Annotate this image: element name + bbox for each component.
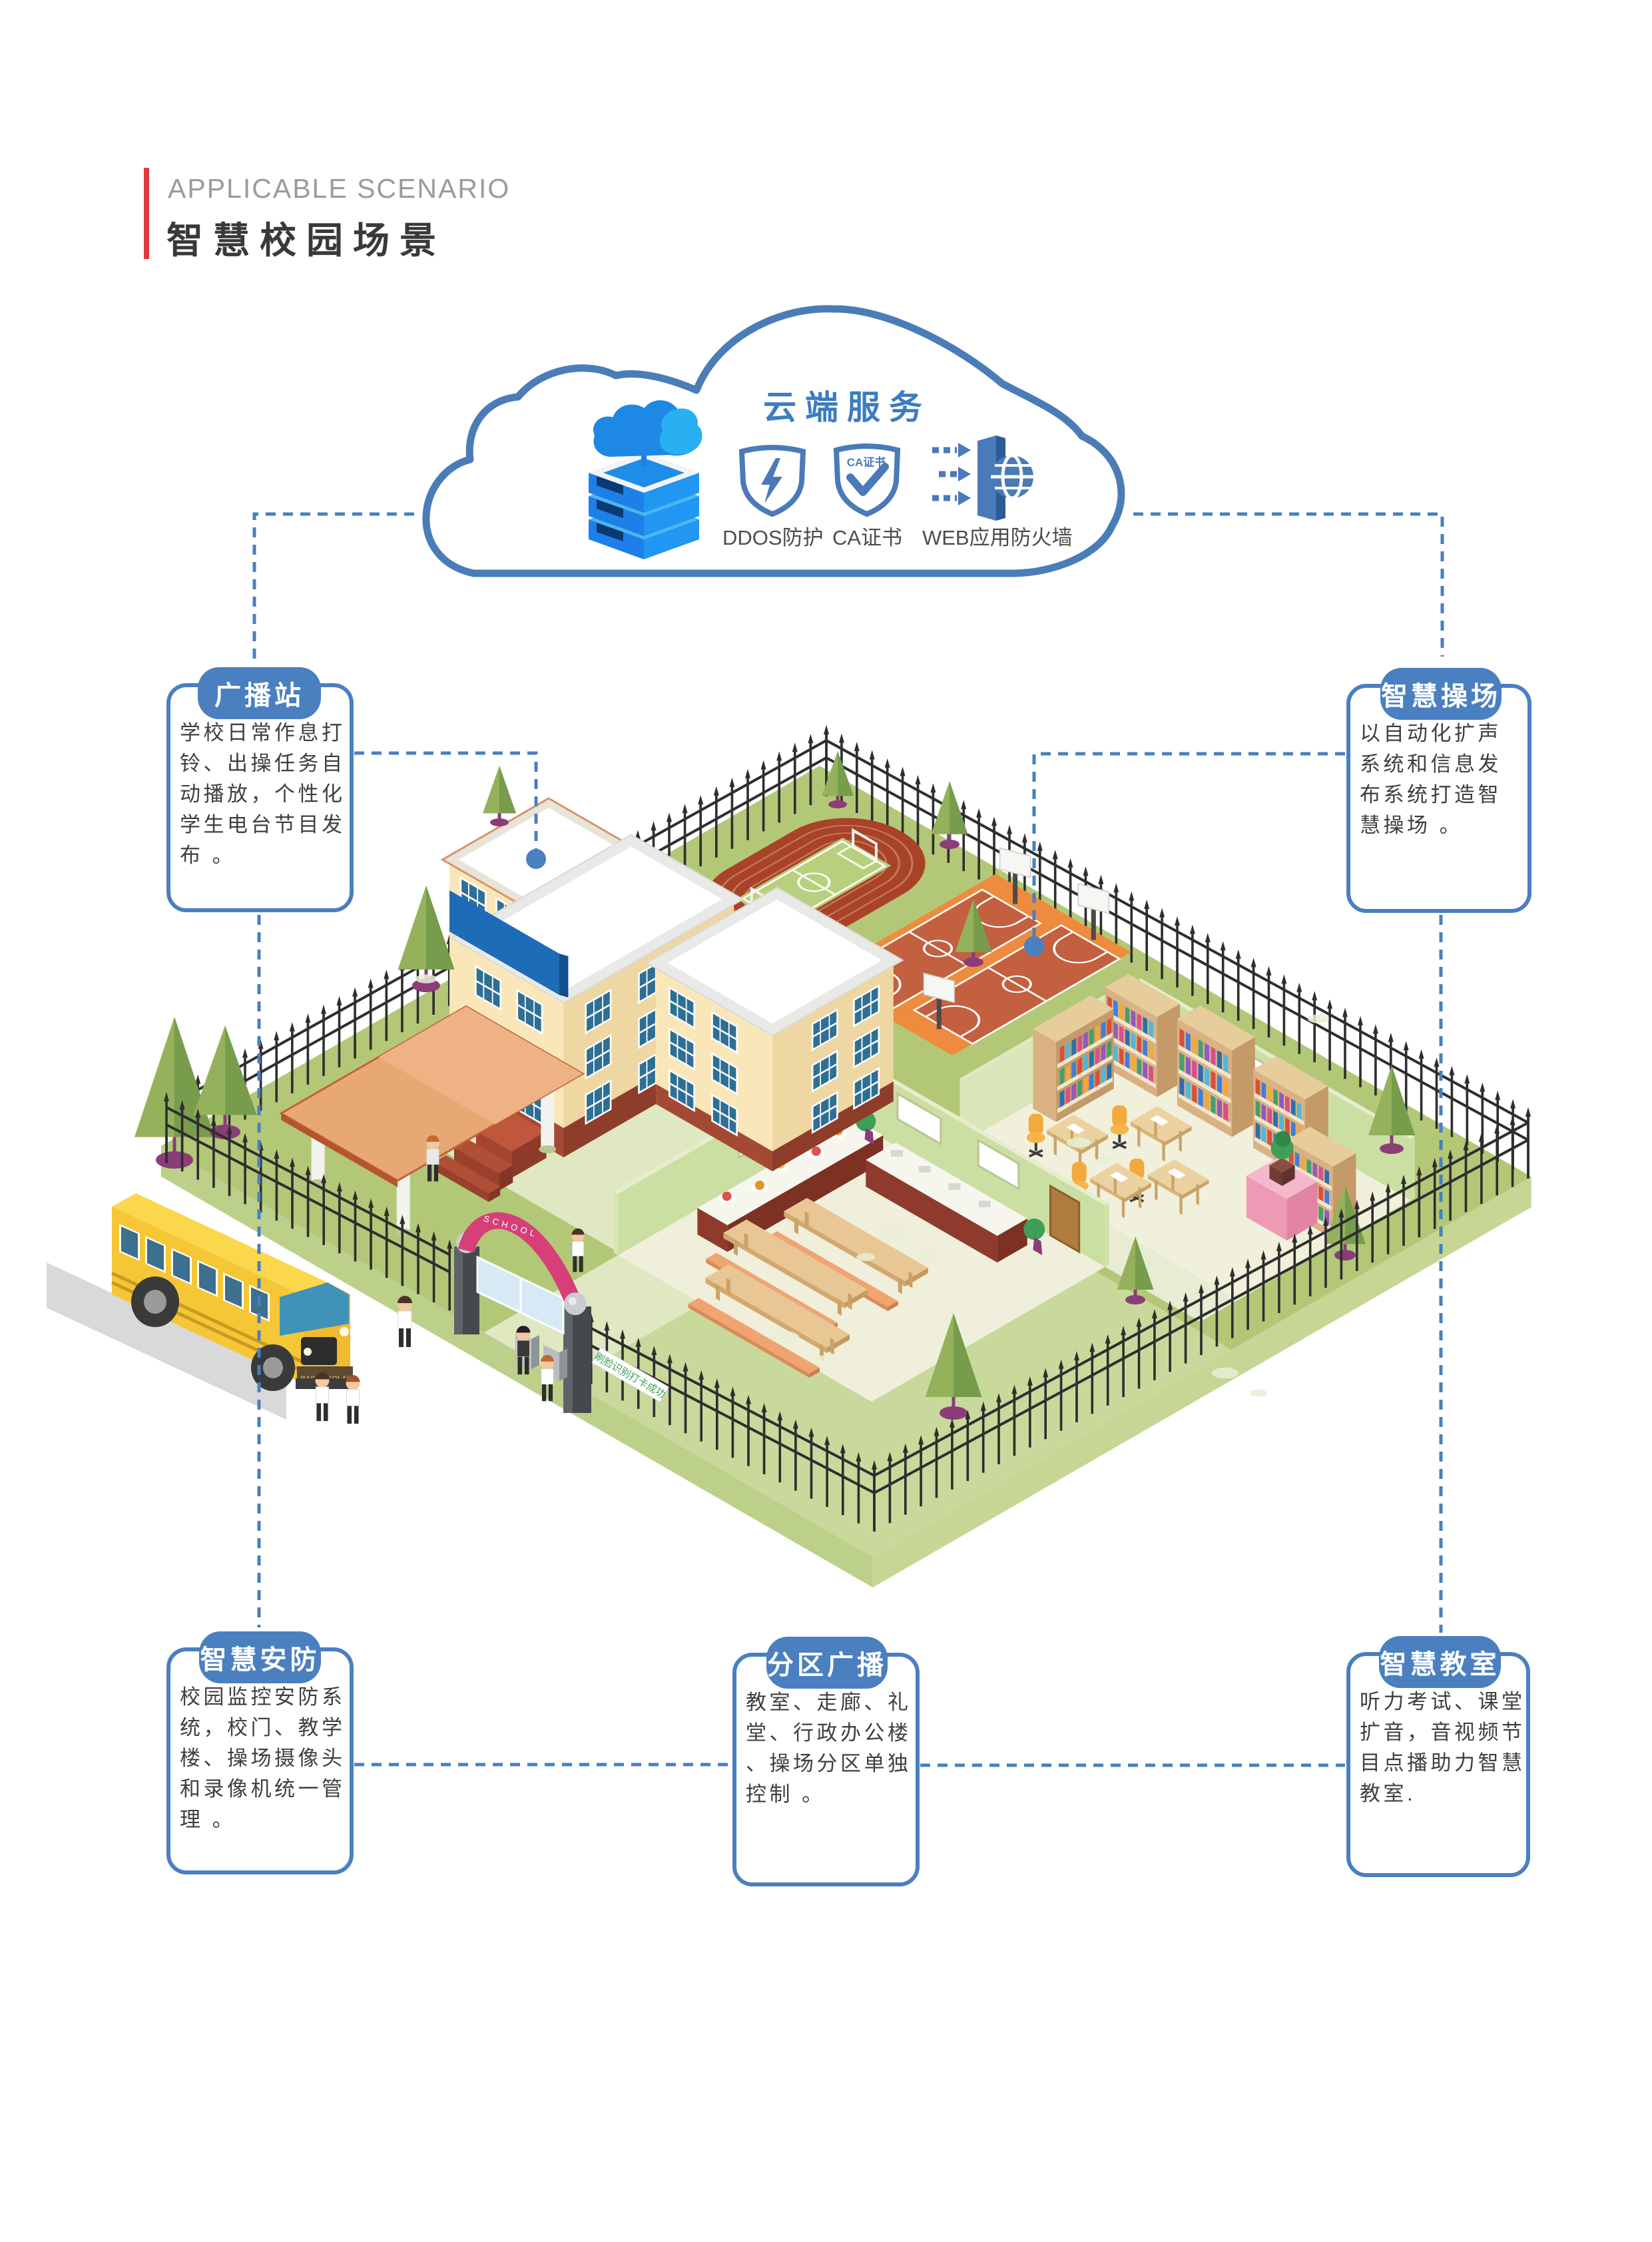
svg-text:CA证书: CA证书 bbox=[847, 456, 886, 469]
